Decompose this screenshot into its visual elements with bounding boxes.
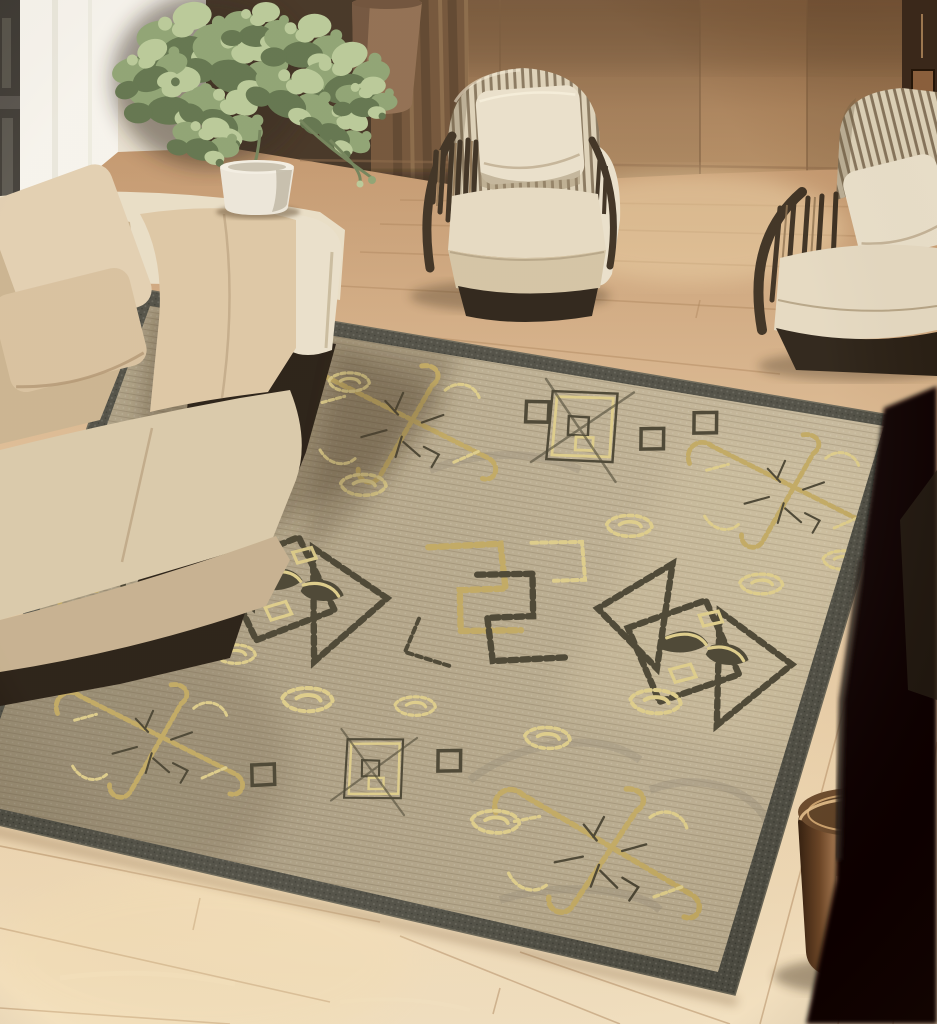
living-room-photo (0, 0, 937, 1024)
scene-canvas (0, 0, 937, 1024)
vignette-overlay (0, 0, 937, 1024)
